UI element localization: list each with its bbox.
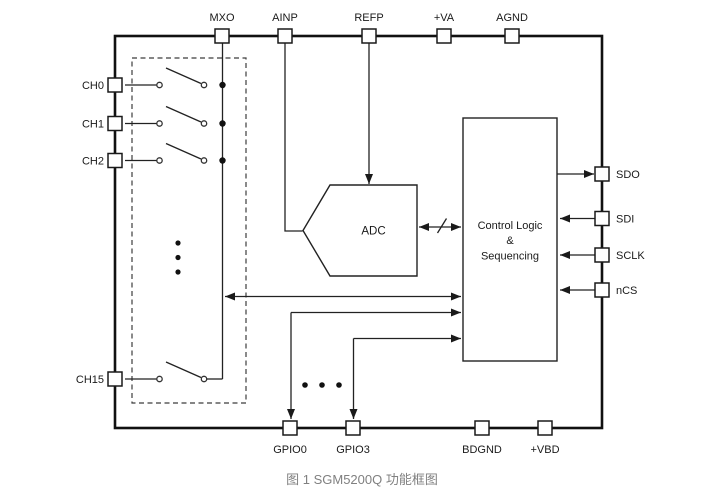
pin-agnd [505, 29, 519, 43]
pin-sdo [595, 167, 609, 181]
pin-ch0 [108, 78, 122, 92]
pin-label-sdi: SDI [616, 214, 634, 226]
mux-dashed-box [132, 58, 246, 403]
pin-label-refp: REFP [354, 12, 383, 24]
junction-dot [219, 120, 225, 126]
pin-label-ch15: CH15 [76, 374, 104, 386]
mux-switch-ch15 [125, 362, 223, 382]
pin-label-ch1: CH1 [82, 119, 104, 131]
mux-ellipsis-dot [175, 269, 180, 274]
switch-blade [166, 107, 201, 123]
mux-switch-ch1 [125, 107, 226, 127]
pin-label-agnd: AGND [496, 12, 528, 24]
switch-blade [166, 68, 201, 84]
adc-block [303, 185, 417, 276]
switch-contact-circle [201, 82, 206, 87]
pin-refp [362, 29, 376, 43]
gpio-ellipsis-dot [302, 382, 308, 388]
block-diagram: ADC Control Logic & Sequencing MXO AINP … [0, 0, 728, 503]
switch-contact-circle [201, 158, 206, 163]
pin-ainp [278, 29, 292, 43]
pin-label-mxo: MXO [209, 12, 235, 24]
wire-ainp-adc [285, 40, 303, 231]
switch-blade [166, 144, 201, 160]
switch-contact-circle [157, 82, 162, 87]
pin-gpio0 [283, 421, 297, 435]
pin-label-sclk: SCLK [616, 250, 645, 262]
adc-label: ADC [361, 226, 385, 238]
pin-label-bdgnd: BDGND [462, 444, 502, 456]
pin-label-vbd: +VBD [530, 444, 559, 456]
mux-switch-ch0 [125, 68, 226, 88]
pin-label-ch2: CH2 [82, 156, 104, 168]
control-logic-label-line3: Sequencing [481, 251, 539, 263]
pin-label-sdo: SDO [616, 169, 640, 181]
junction-dot [219, 82, 225, 88]
switch-contact-circle [157, 121, 162, 126]
pin-mxo [215, 29, 229, 43]
pin-gpio3 [346, 421, 360, 435]
pin-label-gpio0: GPIO0 [273, 444, 307, 456]
pin-sclk [595, 248, 609, 262]
pin-label-ncs: nCS [616, 285, 637, 297]
junction-dot [219, 157, 225, 163]
gpio-ellipsis-dot [319, 382, 325, 388]
pin-ch2 [108, 154, 122, 168]
pin-label-ainp: AINP [272, 12, 298, 24]
mux-ellipsis-dot [175, 255, 180, 260]
figure-caption: 图 1 SGM5200Q 功能框图 [286, 472, 438, 487]
mux-switch-ch2 [125, 144, 226, 164]
pin-va [437, 29, 451, 43]
pin-sdi [595, 212, 609, 226]
switch-contact-circle [201, 376, 206, 381]
gpio-ellipsis-dot [336, 382, 342, 388]
pin-vbd [538, 421, 552, 435]
figure-container: ADC Control Logic & Sequencing MXO AINP … [0, 0, 728, 503]
switch-contact-circle [157, 158, 162, 163]
bus-slash [438, 219, 447, 234]
switch-contact-circle [201, 121, 206, 126]
pin-ncs [595, 283, 609, 297]
control-logic-label-line2: & [506, 235, 514, 247]
switch-blade [166, 362, 201, 378]
pin-label-gpio3: GPIO3 [336, 444, 370, 456]
pin-ch1 [108, 117, 122, 131]
pin-ch15 [108, 372, 122, 386]
pin-label-va: +VA [434, 12, 455, 24]
pin-bdgnd [475, 421, 489, 435]
switch-contact-circle [157, 376, 162, 381]
pin-label-ch0: CH0 [82, 80, 104, 92]
mux-ellipsis-dot [175, 240, 180, 245]
control-logic-label-line1: Control Logic [478, 220, 543, 232]
